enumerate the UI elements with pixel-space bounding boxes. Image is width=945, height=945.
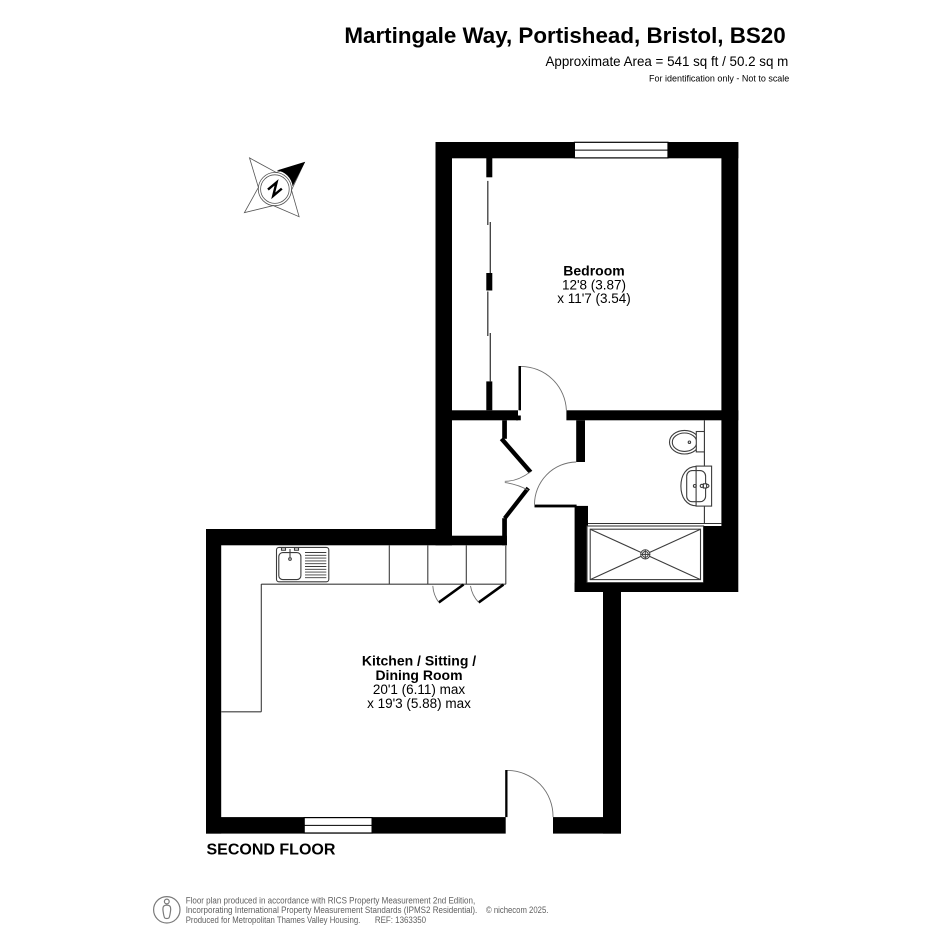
svg-text:Incorporating International Pr: Incorporating International Property Mea…	[186, 905, 478, 915]
svg-text:Floor plan produced in accorda: Floor plan produced in accordance with R…	[186, 895, 476, 905]
svg-text:SECOND FLOOR: SECOND FLOOR	[207, 841, 336, 858]
svg-text:Produced for Metropolitan Tham: Produced for Metropolitan Thames Valley …	[186, 915, 361, 925]
svg-text:For identification only - Not: For identification only - Not to scale	[649, 73, 789, 84]
svg-text:Dining Room: Dining Room	[375, 667, 462, 683]
svg-text:REF: 1363350: REF: 1363350	[375, 915, 426, 925]
svg-text:Bedroom: Bedroom	[563, 262, 624, 278]
svg-text:x 19'3 (5.88) max: x 19'3 (5.88) max	[367, 696, 471, 711]
svg-text:20'1 (6.11) max: 20'1 (6.11) max	[373, 682, 466, 697]
svg-text:12'8 (3.87): 12'8 (3.87)	[562, 277, 626, 292]
svg-text:Martingale Way, Portishead, Br: Martingale Way, Portishead, Bristol, BS2…	[344, 23, 785, 48]
svg-text:Approximate Area = 541 sq ft /: Approximate Area = 541 sq ft / 50.2 sq m	[546, 54, 789, 69]
svg-text:© nichecom 2025.: © nichecom 2025.	[486, 905, 548, 915]
svg-text:x 11'7 (3.54): x 11'7 (3.54)	[557, 291, 631, 306]
